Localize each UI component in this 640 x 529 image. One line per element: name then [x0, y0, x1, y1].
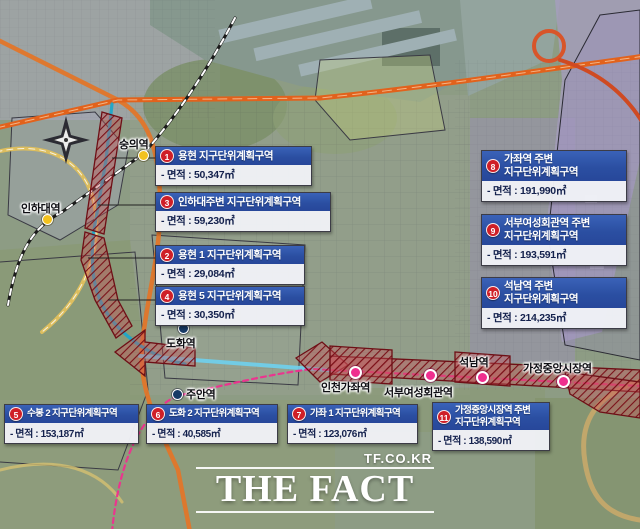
station-label-seobu-womens-hall: 서부여성회관역	[384, 384, 453, 400]
zone-area: - 면적 : 214,235㎡	[482, 308, 626, 328]
zone-area: - 면적 : 40,585㎡	[147, 423, 277, 443]
zone-box-7: 7 가좌 1 지구단위계획구역 - 면적 : 123,076㎡	[287, 404, 418, 444]
zone-title: 인하대주변 지구단위계획구역	[178, 196, 301, 209]
zone-title: 용현 5 지구단위계획구역	[178, 290, 281, 303]
zone-number-badge: 7	[292, 407, 306, 421]
zone-number-badge: 6	[151, 407, 165, 421]
zone-area: - 면적 : 123,076㎡	[288, 423, 417, 443]
watermark-url: TF.CO.KR	[196, 451, 434, 466]
zone-box-2: 2 용현 1 지구단위계획구역 - 면적 : 29,084㎡	[155, 245, 305, 285]
zone-number-badge: 2	[160, 248, 174, 262]
station-dot-juan	[172, 389, 183, 400]
station-label-seoknam: 석남역	[459, 354, 488, 370]
station-dot-incheon-gajwa	[349, 366, 362, 379]
zone-area: - 면적 : 29,084㎡	[156, 264, 304, 284]
station-label-gajeong-central-market: 가정중앙시장역	[523, 360, 592, 376]
zone-title: 가좌역 주변 지구단위계획구역	[504, 153, 578, 179]
zone-number-badge: 5	[9, 407, 23, 421]
zone-number-badge: 11	[437, 410, 451, 424]
zone-box-9: 9 서부여성회관역 주변 지구단위계획구역 - 면적 : 193,591㎡	[481, 214, 627, 266]
zone-area: - 면적 : 191,990㎡	[482, 181, 626, 201]
zone-box-11: 11 가정중앙시장역 주변 지구단위계획구역 - 면적 : 138,590㎡	[432, 402, 550, 451]
zone-number-badge: 1	[160, 149, 174, 163]
zone-title: 용현 1 지구단위계획구역	[178, 249, 281, 262]
zone-title: 가좌 1 지구단위계획구역	[310, 408, 400, 420]
zone-area: - 면적 : 59,230㎡	[156, 211, 330, 231]
station-dot-gajeong-central-market	[557, 375, 570, 388]
zone-title: 석남역 주변 지구단위계획구역	[504, 280, 578, 306]
zone-area: - 면적 : 153,187㎡	[5, 423, 138, 443]
watermark-logo: THE FACT	[196, 469, 434, 510]
zone-box-4: 4 용현 5 지구단위계획구역 - 면적 : 30,350㎡	[155, 286, 305, 326]
station-label-sungui: 숭의역	[119, 136, 148, 152]
zone-area: - 면적 : 50,347㎡	[156, 165, 311, 185]
zone-title: 수봉 2 지구단위계획구역	[27, 408, 117, 420]
zone-title: 도화 2 지구단위계획구역	[169, 408, 259, 420]
zone-title: 서부여성회관역 주변 지구단위계획구역	[504, 217, 590, 243]
zone-box-3: 3 인하대주변 지구단위계획구역 - 면적 : 59,230㎡	[155, 192, 331, 232]
zone-title: 용현 지구단위계획구역	[178, 150, 273, 163]
watermark-rule-bottom	[196, 511, 434, 513]
infographic-map: 숭의역 인하대역 도화역 주안역 인천가좌역 서부여성회관역 석남역 가정중앙시…	[0, 0, 640, 529]
zone-area: - 면적 : 30,350㎡	[156, 305, 304, 325]
zone-title: 가정중앙시장역 주변 지구단위계획구역	[455, 405, 530, 428]
zone-box-6: 6 도화 2 지구단위계획구역 - 면적 : 40,585㎡	[146, 404, 278, 444]
station-label-incheon-gajwa: 인천가좌역	[321, 379, 370, 395]
zone-number-badge: 3	[160, 195, 174, 209]
zone-area: - 면적 : 193,591㎡	[482, 245, 626, 265]
zone-box-1: 1 용현 지구단위계획구역 - 면적 : 50,347㎡	[155, 146, 312, 186]
zone-box-10: 10 석남역 주변 지구단위계획구역 - 면적 : 214,235㎡	[481, 277, 627, 329]
zone-box-5: 5 수봉 2 지구단위계획구역 - 면적 : 153,187㎡	[4, 404, 139, 444]
station-dot-seoknam	[476, 371, 489, 384]
station-label-juan: 주안역	[186, 386, 215, 402]
station-dot-seobu-womens-hall	[424, 369, 437, 382]
zone-number-badge: 10	[486, 286, 500, 300]
zone-number-badge: 9	[486, 223, 500, 237]
zone-area: - 면적 : 138,590㎡	[433, 430, 549, 450]
station-label-dohwa: 도화역	[166, 335, 195, 351]
zone-number-badge: 8	[486, 159, 500, 173]
station-label-inha-univ: 인하대역	[21, 200, 60, 216]
zone-number-badge: 4	[160, 289, 174, 303]
watermark: TF.CO.KR THE FACT	[196, 451, 434, 513]
zone-box-8: 8 가좌역 주변 지구단위계획구역 - 면적 : 191,990㎡	[481, 150, 627, 202]
